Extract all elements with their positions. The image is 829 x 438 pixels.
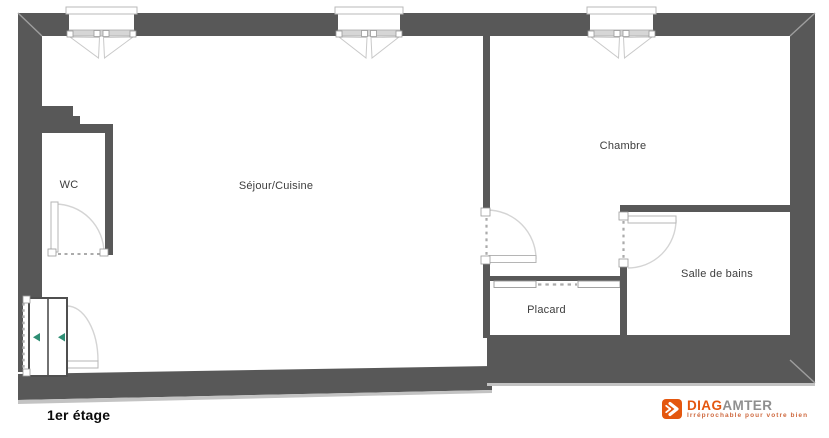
wc-door — [48, 202, 108, 256]
wc-door-hinge — [48, 249, 56, 256]
sdb-door-hinge — [619, 212, 628, 220]
window-casement-left — [339, 37, 367, 58]
chambre-door-leaf — [489, 256, 536, 263]
entrance-hinge — [23, 296, 30, 303]
window-bar — [590, 30, 653, 36]
placard-wall-top — [490, 276, 620, 281]
wall-bottom-left — [18, 366, 492, 400]
room-label-sejour-cuisine: Séjour/Cuisine — [200, 180, 352, 192]
window-hinge — [130, 31, 136, 37]
sdb-wall-left-lower — [620, 265, 627, 335]
room-label-chambre: Chambre — [555, 140, 691, 152]
window-casement-right — [371, 37, 399, 58]
entrance-door — [23, 296, 98, 376]
window-bar — [69, 30, 134, 36]
room-label-wc: WC — [39, 179, 99, 191]
sdb-door-swing — [628, 220, 676, 268]
placard — [490, 276, 620, 288]
room-label-salle-de-bains: Salle de bains — [640, 268, 794, 280]
double-chevron-right-icon — [662, 399, 682, 419]
window-hinge — [67, 31, 73, 37]
sdb-wall-top — [620, 205, 790, 212]
brand-name: DIAGAMTER — [687, 400, 808, 411]
diagamter-logo: DIAGAMTER Irréprochable pour votre bien — [662, 399, 808, 420]
floor-plan-page: WC Séjour/Cuisine Chambre Placard Salle … — [0, 0, 829, 438]
placard-sliding-panel-right — [578, 281, 620, 288]
wc-wall-top — [42, 124, 113, 133]
wall-bottom-right-highlight — [487, 383, 815, 386]
placard-sliding-panel-left — [494, 281, 536, 288]
window-hinge — [362, 31, 368, 37]
wall-right — [790, 13, 815, 383]
window-hinge — [371, 31, 377, 37]
window-hinge — [94, 31, 100, 37]
partition-wall-upper — [483, 36, 490, 212]
window-hinge — [649, 31, 655, 37]
room-label-placard: Placard — [490, 304, 603, 316]
floor-title: 1er étage — [47, 407, 110, 423]
window-sill — [66, 7, 137, 14]
wc-door-hinge — [100, 249, 108, 256]
logo-text: DIAGAMTER Irréprochable pour votre bien — [687, 399, 808, 420]
entrance-door-swing — [67, 306, 98, 361]
window-casement-left — [591, 37, 620, 58]
entrance-door-leaf — [67, 361, 98, 368]
window-casement-left — [70, 37, 100, 58]
window-sill — [587, 7, 656, 14]
window-bar — [338, 30, 400, 36]
partition-wall-lower — [483, 262, 490, 338]
entrance-hinge — [23, 369, 30, 376]
partition-sejour-chambre — [481, 36, 536, 338]
window-sejour-left — [66, 7, 137, 58]
window-hinge — [614, 31, 620, 37]
sdb-door-leaf — [628, 216, 676, 223]
wall-left-sliver — [18, 302, 23, 372]
window-hinge — [103, 31, 109, 37]
chambre-door-swing — [487, 210, 536, 259]
chambre-door-hinge — [481, 208, 490, 216]
floor-plan-drawing — [0, 0, 829, 438]
wc-wall-right — [105, 124, 113, 255]
window-sill — [335, 7, 403, 14]
chambre-door-hinge — [481, 256, 490, 264]
wall-bottom-right — [487, 335, 815, 383]
brand-tagline: Irréprochable pour votre bien — [687, 413, 808, 420]
window-hinge — [336, 31, 342, 37]
brand-name-part1: DIAG — [687, 398, 722, 413]
wall-top-3 — [400, 13, 590, 36]
window-casement-right — [104, 37, 134, 58]
wall-left — [18, 13, 42, 302]
brand-name-part2: AMTER — [722, 398, 772, 413]
window-hinge — [623, 31, 629, 37]
window-hinge — [396, 31, 402, 37]
wc-door-leaf — [51, 202, 58, 252]
logo-mark — [662, 399, 682, 419]
window-casement-right — [624, 37, 653, 58]
wall-corner-bevels — [18, 13, 815, 383]
window-chambre — [587, 7, 656, 58]
window-sejour-center — [335, 7, 403, 58]
sdb-door-hinge — [619, 259, 628, 267]
window-hinge — [588, 31, 594, 37]
wall-top-2 — [134, 13, 338, 36]
wc-door-swing — [55, 204, 104, 253]
